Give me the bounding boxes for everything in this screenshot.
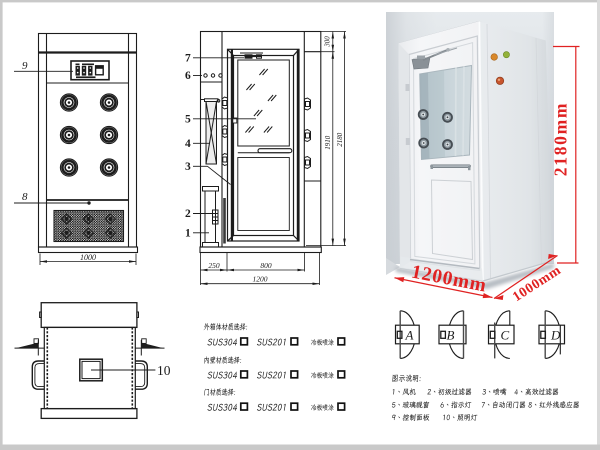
svg-text:2: 2	[185, 208, 191, 220]
svg-text:8: 8	[22, 191, 28, 203]
svg-text:6: 6	[185, 70, 191, 82]
svg-text:250: 250	[208, 261, 220, 270]
svg-text:1: 1	[185, 228, 191, 240]
svg-text:B: B	[447, 328, 455, 343]
svg-text:1910: 1910	[324, 135, 332, 150]
svg-text:C: C	[501, 328, 510, 343]
svg-text:10: 10	[157, 363, 171, 378]
svg-text:5: 5	[185, 114, 191, 126]
svg-text:3: 3	[185, 161, 191, 173]
svg-text:9: 9	[22, 60, 28, 72]
svg-text:2180: 2180	[336, 132, 344, 147]
svg-text:D: D	[550, 328, 561, 343]
svg-text:2180mm: 2180mm	[551, 102, 571, 176]
svg-text:4: 4	[185, 138, 191, 150]
svg-text:300: 300	[324, 36, 332, 48]
svg-text:7: 7	[185, 53, 191, 65]
svg-text:800: 800	[260, 261, 272, 270]
svg-text:1000: 1000	[80, 253, 96, 262]
svg-text:A: A	[405, 328, 414, 343]
svg-text:1200: 1200	[253, 275, 268, 284]
